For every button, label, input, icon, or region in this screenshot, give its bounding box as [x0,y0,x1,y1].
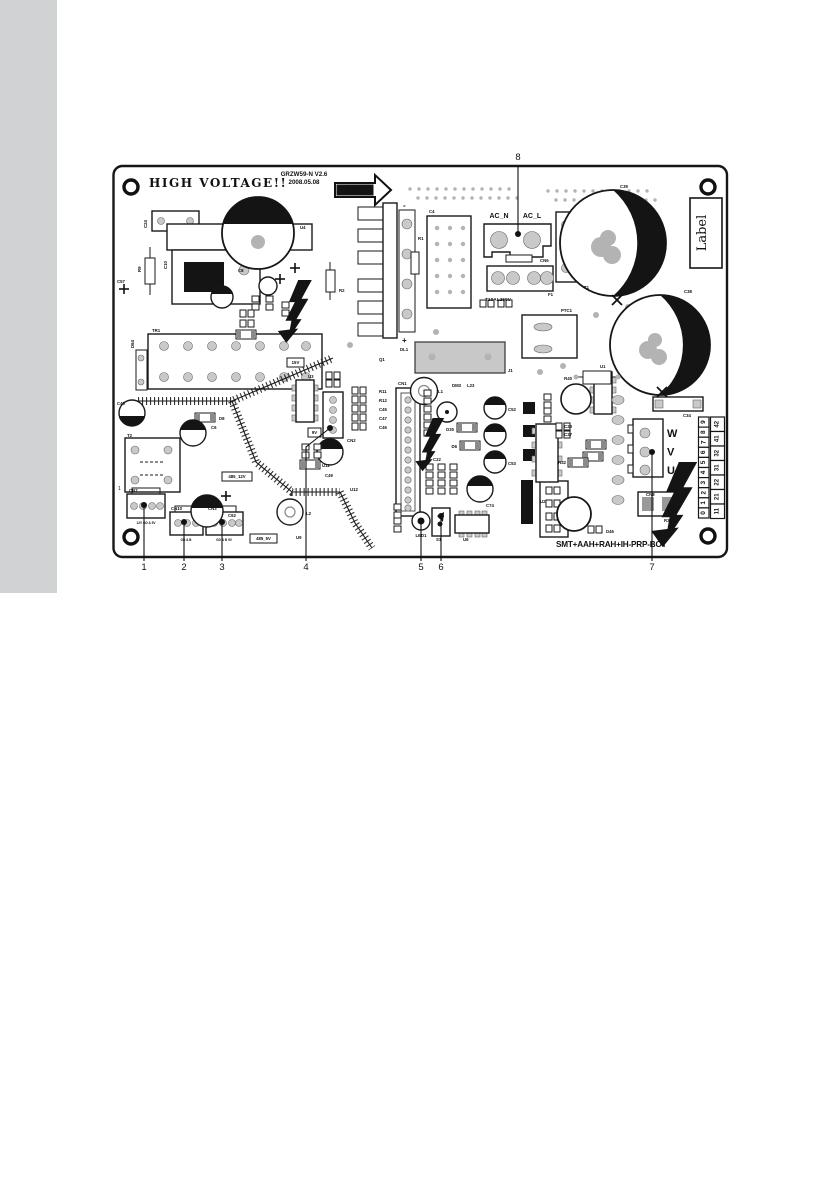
component-label: U11 [322,463,330,468]
callout-number: 4 [303,562,308,573]
component-label: Q1 [379,357,385,362]
component-label: R11 [379,389,387,394]
heatsink-minus: - [403,201,406,210]
component-label: PTC1 [561,308,573,313]
callout-dot [649,449,655,455]
terminal-number: 0 [700,511,707,515]
label-box-text: Label [695,215,710,252]
terminal-number: 6 [700,450,707,454]
component-label: CN10 [171,506,183,511]
phase-label-u: U [667,465,675,477]
pcb-diagram: - + [0,0,839,1191]
sol-label: SOL [346,186,363,196]
boxed-label-text: 9V [312,430,317,435]
callout-number: 8 [515,152,520,163]
callout-number: 2 [181,562,186,573]
terminal-number: 7 [700,440,707,444]
terminal-number: 8 [700,430,707,434]
component-label: C24 [143,220,148,228]
component-label: DM3 [452,383,462,388]
heatsink-plus: + [402,336,407,345]
component-label: C74 [486,503,494,508]
inductor-l2 [277,499,303,525]
component-label: D64 [130,340,135,348]
fuse-f1 [487,266,554,291]
diode-d6 [460,441,480,450]
board-version: GRZW59-N V2.6 [281,171,328,178]
component-label: U1 [600,364,606,369]
terminal-strip: 987654321042413231222111 [699,417,725,519]
callout-dot [438,513,444,519]
component-label: C22 [433,457,441,462]
resistor-r2 [326,270,335,292]
fuse-rating: T10AL250V [485,297,512,303]
cap-c38 [610,295,710,395]
page-margin-bar [0,0,57,593]
mounting-hole [124,530,138,544]
transformer-t2: 1 [118,438,180,492]
terminal-number: 41 [715,435,721,442]
connector-cn1 [396,388,420,516]
cap-c34 [653,397,703,411]
component-label: C40 [117,401,125,406]
resistor-r38 [586,440,606,449]
component-label: C10 [163,261,168,269]
terminal-number: 32 [715,449,721,456]
component-label: T1 [584,285,590,290]
component-label: CN2 [347,438,356,443]
component-label: C38 [684,289,692,294]
component-label: R32 [558,460,566,465]
component-label: U2 [540,499,546,504]
cap-c4 [427,216,471,308]
manual-page: - + [0,0,839,1191]
pin-label: GD A B [181,538,193,542]
component-label: C57 [117,279,125,284]
cap-c74 [467,476,493,502]
phase-label-w: W [667,428,678,440]
component-label: C52 [508,407,516,412]
component-label: C27 [564,432,572,437]
ptc1 [522,315,577,358]
component-label: TR1 [152,328,161,333]
component-label: L1 [438,389,444,394]
callout-number: 7 [649,562,654,573]
component-label: L2 [306,511,312,516]
buzzer [557,497,591,531]
callout-number: 1 [141,562,146,573]
resistor-r32 [568,458,588,467]
callout-dot [141,502,147,508]
component-label: U3 [308,374,314,379]
component-label: U6 [463,537,469,542]
component-label: C23 [564,424,572,429]
component-label: D6 [452,444,458,449]
component-label: D30 [446,427,454,432]
component-label: C45 [379,407,387,412]
component-label: CN7 [129,488,138,493]
terminal-number: 21 [715,493,721,500]
callout-dot [418,518,424,524]
component-label: T2 [127,433,133,438]
component-label: C8 [238,268,244,273]
mounting-hole [701,529,715,543]
pin-label: GD A B 5V [216,538,233,542]
component-label: CN6 [540,258,549,263]
diode-d64 [136,350,147,390]
component-label: C46 [379,425,387,430]
component-label: CN8 [646,492,655,497]
component-label: C49 [325,473,333,478]
ic-u6 [455,511,489,537]
terminal-number: 9 [700,420,707,424]
component-label: U9 [296,535,302,540]
callout-dot [219,519,225,525]
component-label: F1 [548,292,554,297]
callout-dot [181,519,187,525]
component-label: J1 [508,368,513,373]
component-label: R12 [379,398,387,403]
component-label: R2 [339,288,345,293]
cap-c53 [484,451,506,473]
diode-d30 [457,423,477,432]
terminal-number: 31 [715,464,721,471]
component-label: L23 [467,383,475,388]
component-label: C6 [211,425,217,430]
callout-dot [327,425,333,431]
cap-c52 [484,397,506,419]
cap-c62 [191,495,223,527]
resistor-r1 [411,252,419,274]
component-label: U4 [300,225,306,230]
boxed-label-text: 485_12V [228,474,245,479]
connector-cn8 [628,419,663,477]
terminal-number: 42 [715,420,721,427]
component-label: C47 [379,416,387,421]
component-label: R9 [137,266,142,272]
mounting-hole [701,180,715,194]
terminal-number: 1 [700,501,707,505]
cap-c54 [259,277,277,295]
ac-line-label: AC_L [523,213,542,220]
pin-label: 12V GD A 5V [136,521,156,525]
component-label: C34 [683,413,691,418]
cap-c6 [180,420,206,446]
component-label: R35 [664,518,672,523]
ac-neutral-label: AC_N [489,213,508,220]
terminal-number: 5 [700,460,707,464]
boxed-label-text: 15V [292,360,300,365]
component-label: CN3 [208,506,217,511]
component-label: C62 [228,513,236,518]
component-label: D46 [606,529,614,534]
component-label: C4 [429,209,435,214]
component-label: C53 [508,461,516,466]
t2-pin1: 1 [118,486,121,492]
component-label: CN1 [398,381,407,386]
bottom-process-code: SMT+AAH+RAH+IH-PRP-BOT [556,540,667,549]
component-label: DL1 [400,347,409,352]
component-label: R40 [564,376,572,381]
component-label: D8 [219,416,225,421]
component-label: U12 [350,487,358,492]
terminal-number: 4 [700,470,707,474]
terminal-number: 11 [715,507,721,514]
mounting-hole [124,180,138,194]
component-label: C39 [620,184,628,189]
terminal-number: 3 [700,480,707,484]
terminal-number: 22 [715,478,721,485]
relay-j1 [415,342,505,373]
cap-c36 [211,286,233,308]
cap [484,424,506,446]
terminal-number: 2 [700,491,707,495]
callout-number: 3 [219,562,224,573]
board-date: 2008.05.08 [289,179,321,186]
cap-round [561,384,591,414]
board-title: HIGH VOLTAGE!! [149,176,287,190]
callout-number: 5 [418,562,423,573]
phase-label-v: V [667,447,675,459]
component-label: R1 [418,236,424,241]
ic-u3 [292,380,318,422]
callout-number: 6 [438,562,443,573]
boxed-label-text: 485_5V [256,536,271,541]
callout-dot [515,231,521,237]
